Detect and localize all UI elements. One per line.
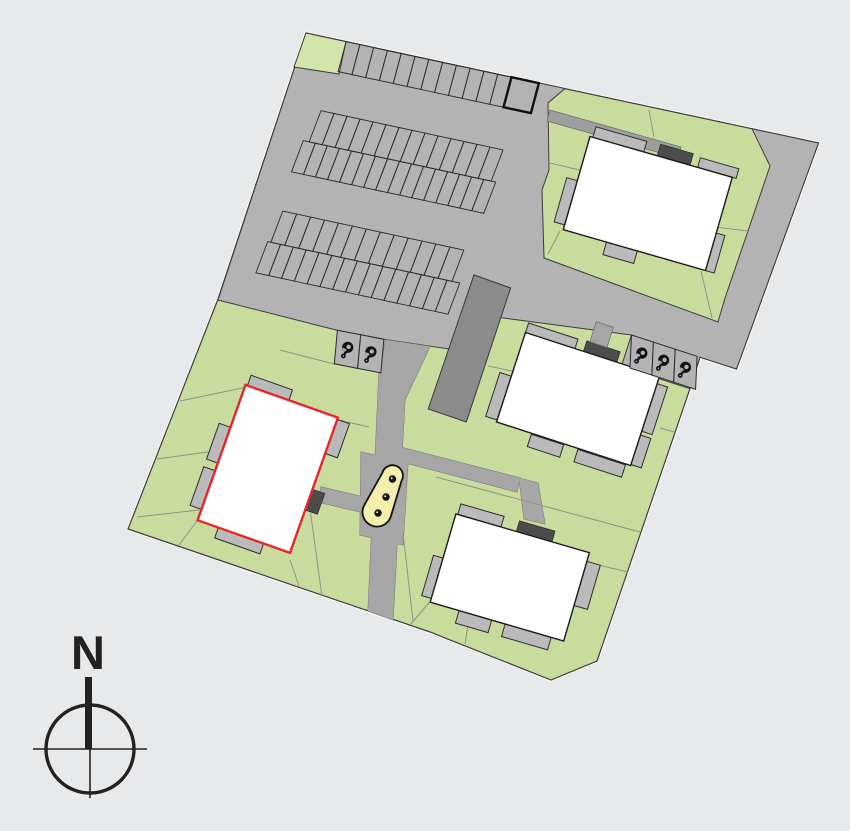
svg-text:N: N bbox=[71, 626, 105, 679]
